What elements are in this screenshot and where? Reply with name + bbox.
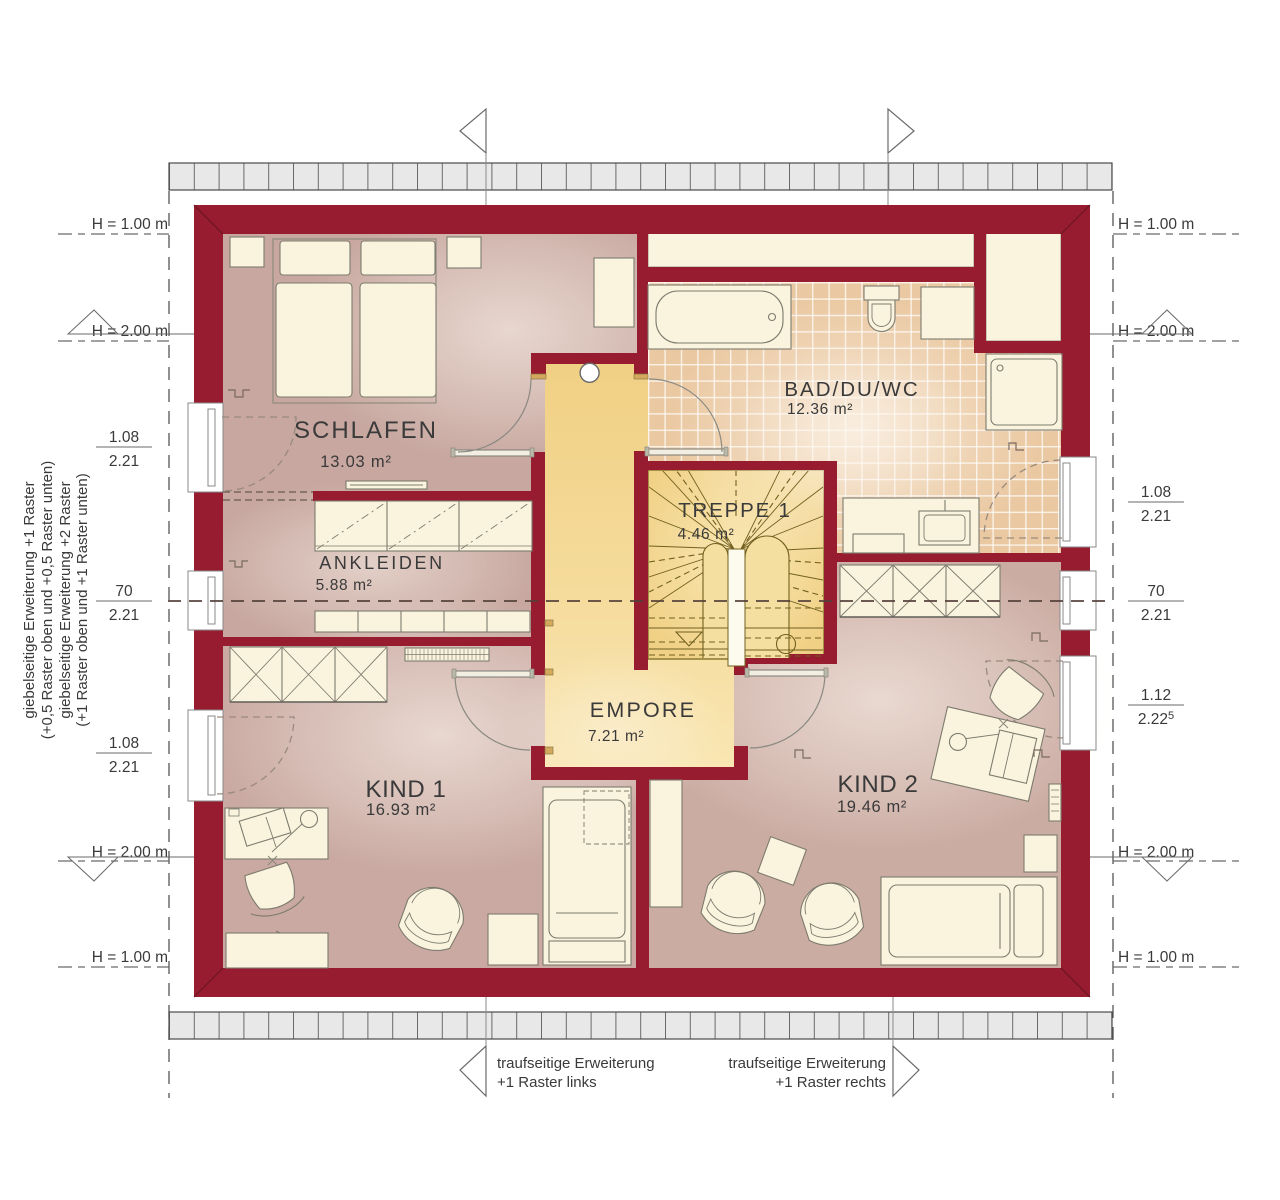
svg-text:ANKLEIDEN: ANKLEIDEN	[319, 553, 444, 573]
svg-text:12.36 m²: 12.36 m²	[787, 401, 853, 418]
svg-text:BAD/DU/WC: BAD/DU/WC	[784, 378, 919, 401]
svg-text:traufseitige Erweiterung: traufseitige Erweiterung	[497, 1055, 655, 1072]
svg-text:13.03 m²: 13.03 m²	[320, 453, 392, 471]
svg-text:EMPORE: EMPORE	[590, 698, 696, 722]
svg-text:5.88 m²: 5.88 m²	[316, 577, 373, 594]
svg-text:H = 1.00 m: H = 1.00 m	[1118, 216, 1194, 233]
svg-text:2.21: 2.21	[109, 607, 139, 624]
svg-text:1.12: 1.12	[1141, 687, 1171, 704]
svg-text:H = 2.00 m: H = 2.00 m	[92, 323, 168, 340]
svg-text:7.21 m²: 7.21 m²	[588, 728, 644, 745]
svg-text:2.21: 2.21	[1141, 508, 1171, 525]
svg-text:1.08: 1.08	[109, 429, 139, 446]
svg-text:+1 Raster links: +1 Raster links	[497, 1074, 597, 1091]
svg-text:16.93 m²: 16.93 m²	[366, 801, 436, 819]
svg-text:H = 1.00 m: H = 1.00 m	[1118, 949, 1194, 966]
svg-text:1.08: 1.08	[1141, 484, 1171, 501]
svg-text:19.46 m²: 19.46 m²	[837, 798, 907, 816]
svg-text:1.08: 1.08	[109, 735, 139, 752]
svg-text:H = 2.00 m: H = 2.00 m	[92, 844, 168, 861]
svg-text:70: 70	[1147, 583, 1165, 600]
svg-text:TREPPE 1: TREPPE 1	[678, 499, 792, 522]
svg-text:70: 70	[115, 583, 133, 600]
svg-text:traufseitige Erweiterung: traufseitige Erweiterung	[728, 1055, 886, 1072]
svg-text:H = 2.00 m: H = 2.00 m	[1118, 844, 1194, 861]
svg-text:giebelseitige Erweiterung +1 R: giebelseitige Erweiterung +1 Raster	[21, 481, 38, 718]
svg-text:KIND 1: KIND 1	[366, 776, 447, 803]
svg-text:giebelseitige Erweiterung +2 R: giebelseitige Erweiterung +2 Raster	[57, 481, 74, 718]
svg-text:4.46 m²: 4.46 m²	[678, 526, 735, 543]
svg-text:2.21: 2.21	[109, 453, 139, 470]
svg-text:KIND 2: KIND 2	[838, 771, 919, 798]
svg-text:(+1 Raster oben und +1 Raster: (+1 Raster oben und +1 Raster unten)	[74, 473, 91, 727]
svg-text:+1 Raster rechts: +1 Raster rechts	[776, 1074, 886, 1091]
svg-text:SCHLAFEN: SCHLAFEN	[294, 417, 438, 444]
svg-text:2.21: 2.21	[1141, 607, 1171, 624]
svg-text:2.21: 2.21	[109, 759, 139, 776]
svg-text:H = 1.00 m: H = 1.00 m	[92, 216, 168, 233]
svg-text:H = 1.00 m: H = 1.00 m	[92, 949, 168, 966]
svg-text:(+0,5 Raster oben und +0,5 Ras: (+0,5 Raster oben und +0,5 Raster unten)	[39, 461, 56, 740]
